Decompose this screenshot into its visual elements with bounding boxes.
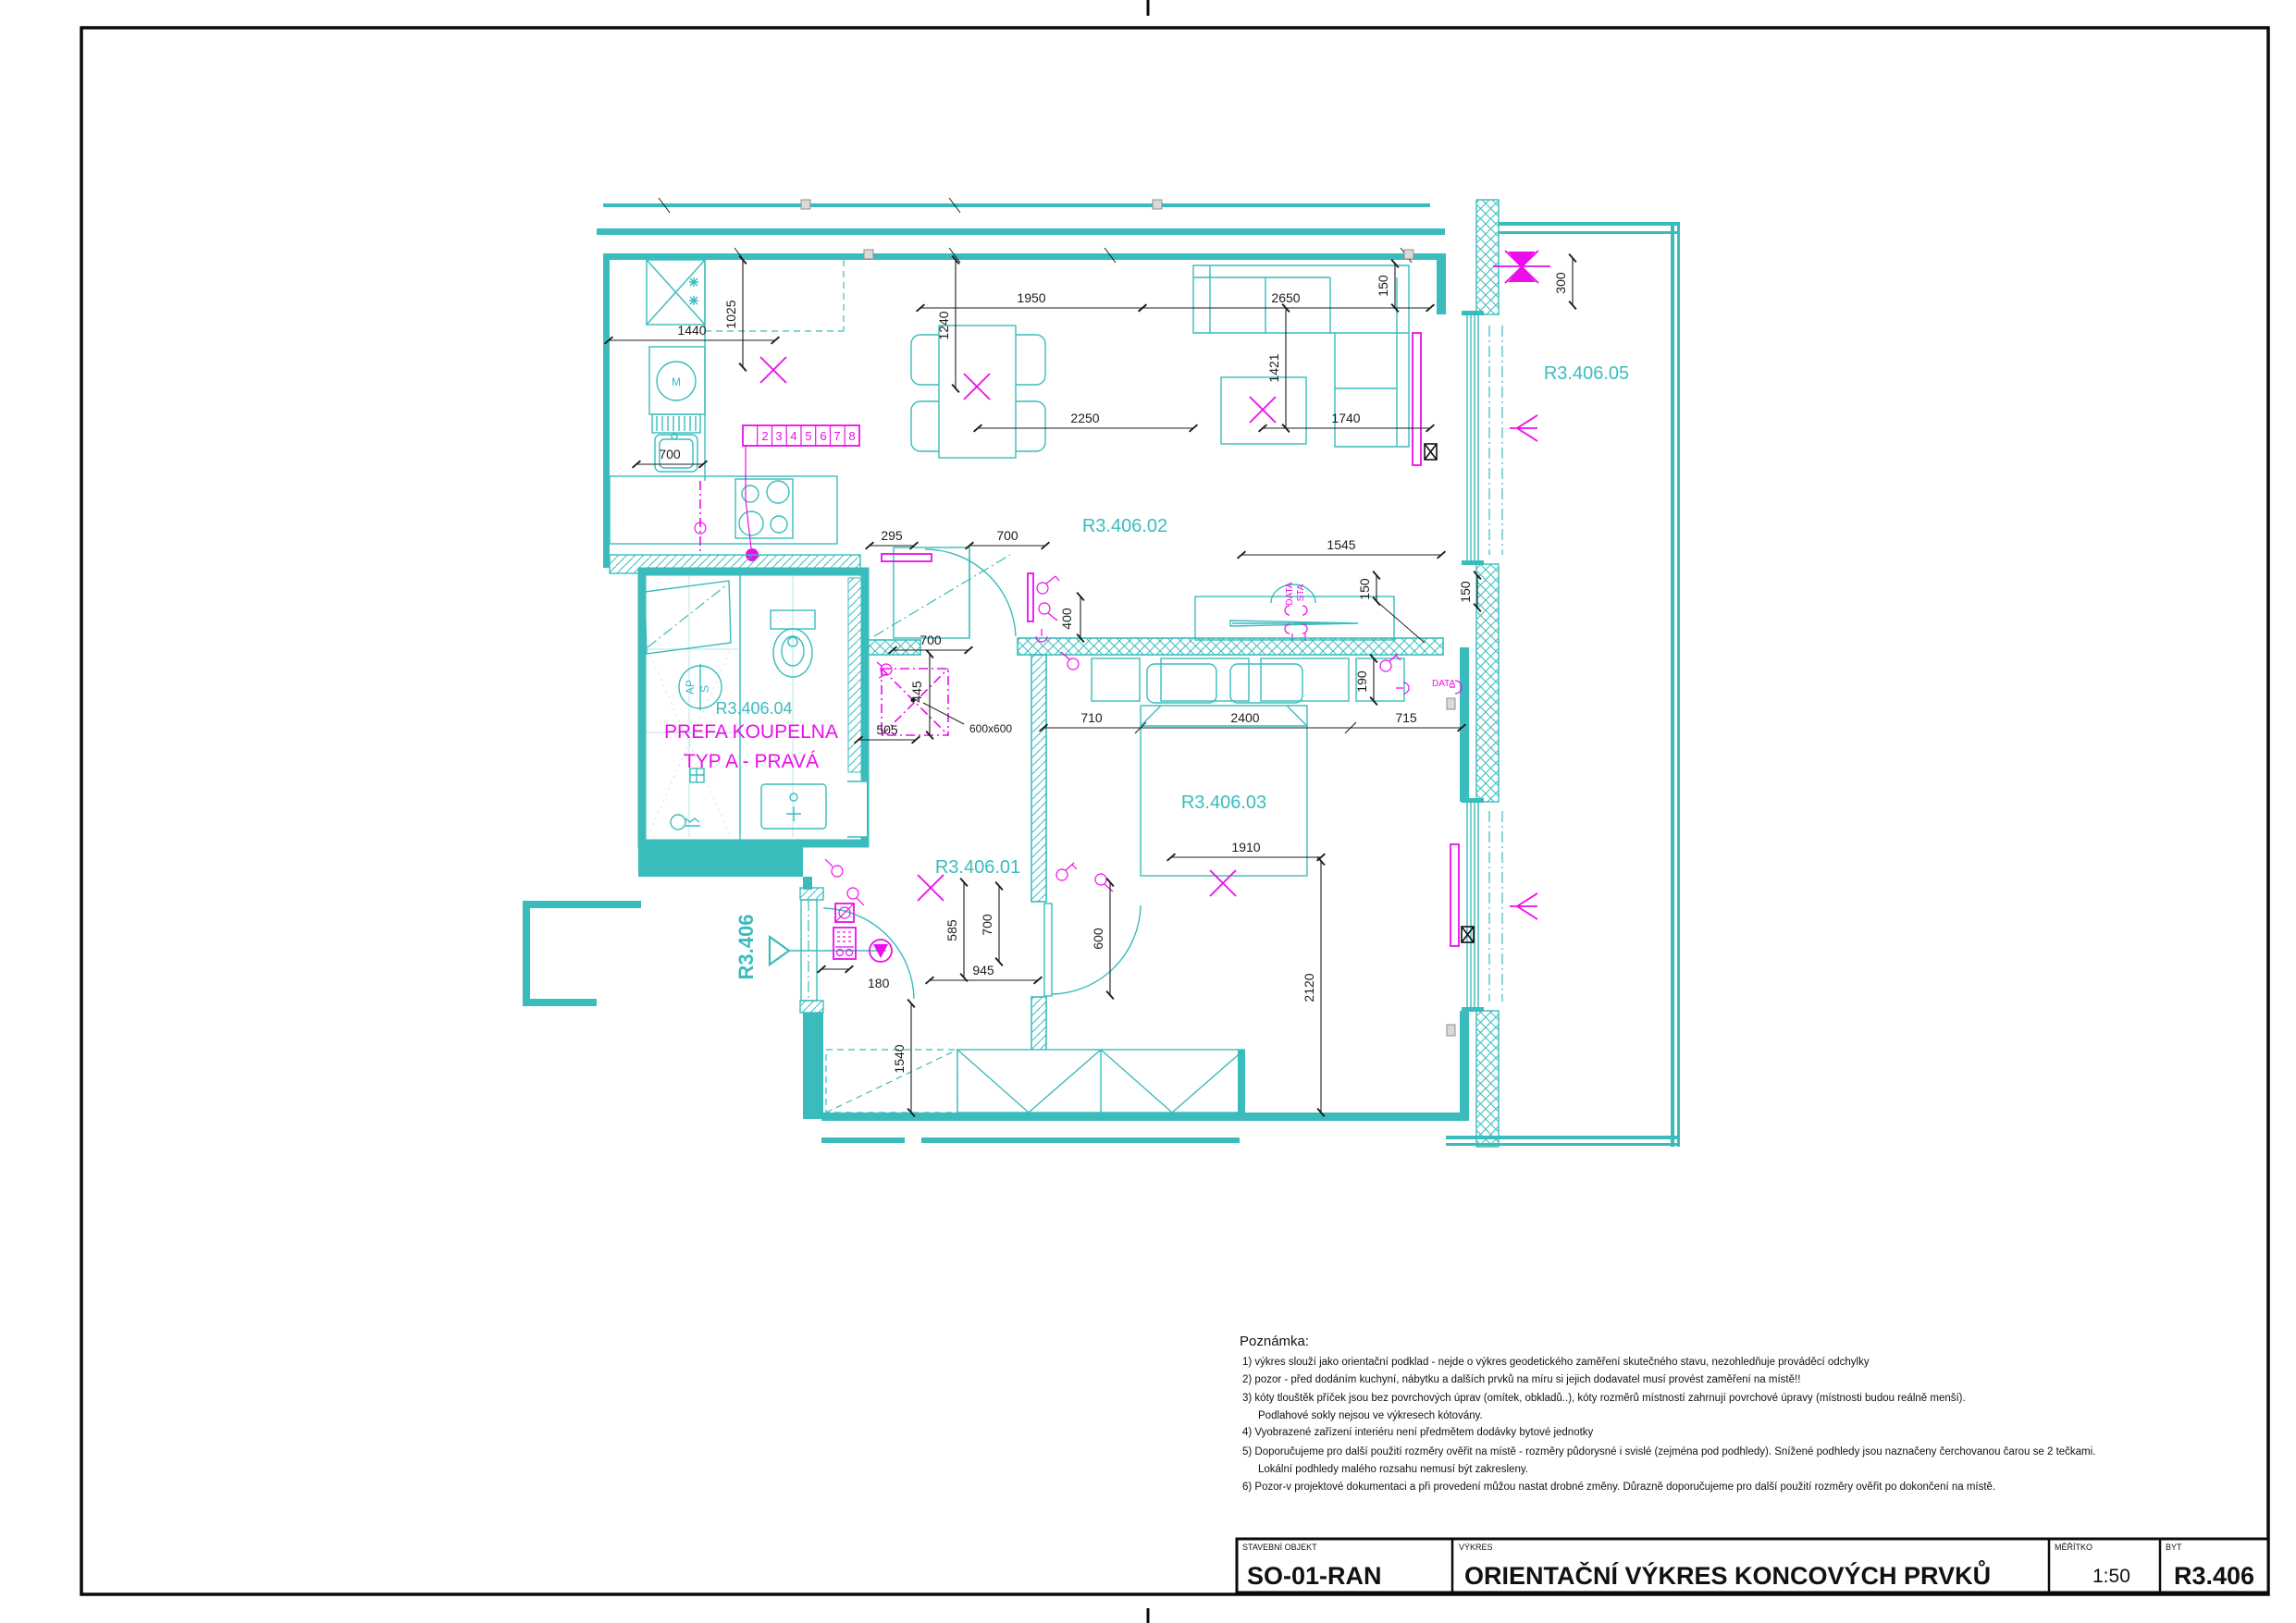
bed	[1141, 664, 1307, 876]
field-label-building: STAVEBNÍ OBJEKT	[1242, 1543, 1317, 1552]
dim-label: 1740	[1331, 411, 1360, 425]
balcony-door	[1462, 311, 1502, 565]
drawing-sheet: R3.406.05 M	[0, 0, 2296, 1623]
dim-label: 700	[980, 914, 994, 936]
room-label-hall: R3.406.01	[935, 857, 1020, 878]
socket-icon	[1447, 698, 1455, 709]
bathroom-sink	[761, 784, 826, 829]
dim-label: 715	[1395, 710, 1417, 725]
title-block: STAVEBNÍ OBJEKT SO-01-RAN VÝKRES ORIENTA…	[1237, 1539, 2268, 1592]
socket-icon	[801, 200, 810, 209]
note-line: 6) Pozor-v projektové dokumentaci a při …	[1242, 1482, 1995, 1493]
exterior-light-arrow-icon	[1510, 415, 1537, 441]
dim-label: 1910	[1231, 840, 1260, 855]
socket-icon	[864, 250, 873, 259]
note-line: 1) výkres slouží jako orientační podklad…	[1242, 1357, 1870, 1368]
ceiling-light-icon	[1493, 251, 1550, 283]
dim-label: 445	[909, 681, 924, 703]
notes-block: Poznámka: 1) výkres slouží jako orientač…	[1240, 1334, 2095, 1493]
shutter-box-icon	[1425, 444, 1437, 460]
light-x-icon	[1210, 870, 1236, 896]
dim-label: 2400	[1230, 710, 1259, 725]
room-label-bathroom: R3.406.04	[715, 699, 792, 718]
note-line: 2) pozor - před dodáním kuchyní, nábytku…	[1242, 1374, 1800, 1385]
dim-label: 1240	[936, 311, 951, 339]
note-line: 3) kóty tlouštěk příček jsou bez povrcho…	[1242, 1393, 1966, 1404]
dim-label: 1025	[723, 300, 738, 328]
dim-label: 2650	[1271, 290, 1300, 305]
dim-label: 190	[1354, 670, 1369, 693]
dim-label: 2120	[1302, 973, 1316, 1002]
headboard-shelf	[1261, 658, 1349, 701]
socket-icon	[1404, 250, 1413, 259]
circuit-number: 5	[805, 429, 811, 443]
note-line: Lokální podhledy malého rozsahu nemusí b…	[1258, 1464, 1528, 1475]
bedroom: R3.406.03 DATA	[821, 652, 1474, 1143]
kitchen-sink	[652, 414, 700, 472]
room-label-balcony: R3.406.05	[1544, 363, 1629, 384]
data-label: DATA	[1285, 582, 1295, 606]
sta-label: STA	[1296, 584, 1306, 601]
field-value-drawing: ORIENTAČNÍ VÝKRES KONCOVÝCH PRVKŮ	[1464, 1559, 1991, 1590]
bathroom-mirror	[645, 581, 731, 654]
radiator	[1450, 844, 1459, 946]
dim-label: 300	[1553, 272, 1568, 294]
circuit-number: 3	[775, 429, 782, 443]
circuit-number: 7	[833, 429, 840, 443]
switch-icon	[1028, 573, 1059, 642]
bedroom-window	[1462, 798, 1502, 1012]
field-label-unit: BYT	[2166, 1543, 2182, 1552]
dim-label: 1545	[1327, 537, 1355, 552]
note-line: Podlahové sokly nejsou ve výkresech kóto…	[1258, 1410, 1483, 1421]
nightstand	[1092, 658, 1140, 701]
dim-label: 150	[1376, 275, 1390, 297]
prefab-label-1: PREFA KOUPELNA	[664, 721, 838, 743]
dim-label: 600x600	[969, 722, 1012, 735]
entry-marker-icon	[770, 937, 789, 965]
dim-label: 700	[659, 447, 681, 461]
socket-icon	[1153, 200, 1162, 209]
radiator	[1413, 333, 1421, 465]
dim-label: 180	[868, 976, 890, 990]
wardrobe	[826, 1050, 1244, 1113]
washing-machine-label: M	[672, 375, 681, 388]
dim-label: 710	[1080, 710, 1103, 725]
dining-set	[911, 326, 1045, 458]
exterior-light-arrow-icon	[1510, 893, 1537, 919]
field-value-building: SO-01-RAN	[1247, 1562, 1382, 1590]
dim-label: 150	[1458, 581, 1473, 603]
field-label-drawing: VÝKRES	[1459, 1543, 1493, 1552]
dim-label: 150	[1357, 578, 1372, 600]
field-label-scale: MĚŘÍTKO	[2055, 1543, 2092, 1552]
washer-label-s: S	[698, 685, 711, 693]
coffee-table	[1221, 377, 1306, 444]
dim-label: 585	[944, 919, 959, 941]
floor-plan-canvas: R3.406.05 M	[0, 0, 2296, 1623]
circuit-number: 6	[820, 429, 826, 443]
field-value-scale: 1:50	[2092, 1566, 2130, 1587]
field-value-unit: R3.406	[2174, 1562, 2254, 1590]
light-x-icon	[918, 875, 944, 901]
dim-label: 505	[876, 722, 898, 737]
circuit-number: 2	[761, 429, 768, 443]
dim-label: 1950	[1017, 290, 1045, 305]
dim-label: 600	[1091, 928, 1105, 950]
bathroom: AP S R3.406.04 PREFA KOUPELNA TYP A - PR…	[610, 555, 868, 877]
socket-icon	[1447, 1025, 1455, 1036]
dim-label: 700	[996, 528, 1018, 543]
light-x-icon	[760, 357, 786, 383]
room-label-living: R3.406.02	[1082, 516, 1167, 536]
dim-label: 2250	[1070, 411, 1099, 425]
dim-label: 1540	[892, 1044, 907, 1073]
stove	[735, 479, 793, 538]
dim-label: 400	[1059, 608, 1074, 630]
notes-heading: Poznámka:	[1240, 1334, 1309, 1349]
washer-label-ap: AP	[684, 680, 697, 695]
sheet-frame	[81, 0, 2268, 1623]
prefab-label-2: TYP A - PRAVÁ	[684, 751, 819, 772]
dim-label: 1421	[1266, 353, 1281, 382]
dim-label: 945	[972, 963, 994, 977]
room-label-bedroom: R3.406.03	[1181, 793, 1266, 813]
balcony-structure: R3.406.05	[1437, 200, 1680, 1147]
note-line: 5) Doporučujeme pro další použití rozměr…	[1242, 1446, 2095, 1457]
dim-label: 295	[881, 528, 903, 543]
dim-label: 700	[920, 633, 942, 647]
door-sensor-bar	[882, 554, 932, 561]
light-x-icon	[1250, 397, 1276, 423]
unit-entry-label: R3.406	[734, 915, 758, 980]
circuit-number: 8	[848, 429, 855, 443]
note-line: 4) Vyobrazené zařízení interiéru není př…	[1242, 1427, 1594, 1438]
circuit-number: 4	[790, 429, 796, 443]
dim-label: 1440	[677, 323, 706, 338]
electro-circuit-strip: 2 3 4 5 6 7 8	[695, 425, 859, 561]
